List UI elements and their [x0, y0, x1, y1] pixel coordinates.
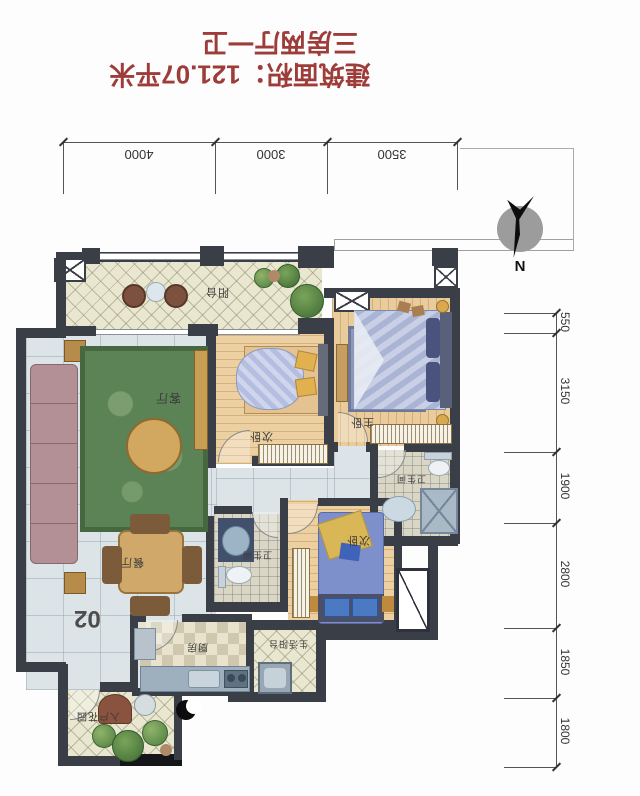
watermark-mark [186, 698, 202, 714]
dim-right-value: 1800 [559, 711, 571, 751]
wall-segment [58, 664, 68, 766]
stool [411, 305, 425, 317]
room-label-bath-master: 卫生间 [396, 474, 426, 483]
burner [227, 674, 235, 682]
dim-right-ext [504, 628, 557, 629]
floor-plan-page: 三房两厅一卫 建筑面积：121.07平米 4000 3000 3500 550 … [0, 0, 640, 796]
plant-icon [290, 284, 324, 318]
dim-right-value: 1850 [559, 642, 571, 682]
room-label-living: 客厅 [155, 392, 181, 404]
shower [420, 488, 458, 534]
wall-segment [316, 626, 326, 700]
dining-chair [182, 546, 202, 584]
room-label-entry-garden: 入户花园 [76, 710, 120, 720]
room-label-balcony: 阳台 [205, 286, 229, 297]
pot-icon [268, 270, 280, 282]
plant-icon [142, 720, 168, 746]
pillar [200, 246, 224, 266]
washing-machine-drum [264, 668, 286, 688]
wardrobe [292, 548, 310, 618]
room-label-bedroom-south: 次卧 [346, 534, 370, 545]
wall-segment [206, 602, 288, 612]
balcony-chair [122, 284, 146, 308]
dim-top-ext [215, 142, 216, 194]
eave-line [573, 148, 574, 250]
window [224, 253, 298, 260]
dim-top-ext [327, 142, 328, 194]
compass: N [490, 194, 554, 280]
balcony-chair [164, 284, 188, 308]
wall-segment [214, 506, 252, 514]
room-label-bath-common: 卫生间 [242, 550, 272, 559]
building-area-text: 建筑面积：121.07平米 [90, 60, 390, 89]
dim-tick [552, 762, 561, 771]
toilet-tank [218, 566, 226, 588]
wall-segment [280, 506, 288, 610]
pot-icon [160, 744, 172, 756]
plant-icon [112, 730, 144, 762]
pillar [298, 246, 334, 268]
dining-chair [130, 596, 170, 616]
wall-segment [280, 498, 288, 506]
room-label-master-bedroom: 主卧 [350, 416, 374, 427]
dim-right-ext [504, 333, 557, 334]
sliding-door [96, 329, 188, 335]
dim-top-line [63, 142, 457, 143]
pillar [432, 248, 458, 266]
dim-top-value: 4000 [109, 148, 169, 161]
wall-segment [58, 682, 68, 692]
wardrobe [370, 424, 452, 444]
wall-segment [66, 326, 96, 336]
dim-right-ext [504, 767, 557, 768]
unit-number: 02 [74, 604, 101, 632]
dim-top-value: 3500 [362, 148, 422, 161]
room-label-service-balcony: 生活阳台 [268, 639, 308, 648]
room-label-dining: 餐厅 [120, 556, 144, 567]
pillow [295, 377, 317, 398]
wall-segment [58, 756, 122, 766]
dresser [336, 344, 348, 402]
ac-unit-box [434, 266, 458, 288]
room-label-kitchen: 厨房 [186, 641, 208, 651]
dim-top-value: 3000 [241, 148, 301, 161]
dim-top-ext [457, 142, 458, 190]
headboard [318, 344, 328, 416]
wall-segment [174, 688, 182, 760]
dining-chair [130, 514, 170, 534]
balcony-table [146, 282, 166, 302]
dim-right-value: 3150 [559, 371, 571, 411]
mirror [134, 694, 156, 716]
north-label: N [505, 258, 535, 276]
wall-segment [332, 442, 338, 452]
kitchen-sink [188, 670, 220, 688]
dim-right-value: 550 [559, 302, 571, 342]
fridge [134, 628, 156, 660]
pillow [352, 598, 378, 617]
tv-cabinet [194, 350, 208, 450]
dim-right-ext [504, 452, 557, 453]
window [100, 253, 200, 260]
toilet [428, 460, 450, 476]
toilet-tank [424, 452, 452, 460]
sofa [30, 364, 78, 564]
wall-segment [182, 614, 252, 622]
dim-right-value: 2800 [559, 554, 571, 594]
dim-right-ext [504, 698, 557, 699]
burner [238, 674, 246, 682]
dining-chair [102, 546, 122, 584]
headboard [440, 312, 452, 408]
bay-window [334, 290, 370, 312]
pillow [324, 598, 350, 617]
nightstand [382, 596, 394, 612]
dim-right-value: 1900 [559, 466, 571, 506]
wall-segment [16, 328, 26, 672]
nightstand [436, 300, 449, 313]
pillow [294, 350, 317, 372]
pillow [426, 362, 440, 402]
side-table [64, 572, 86, 594]
sink [382, 496, 416, 522]
coffee-table [126, 418, 182, 474]
layout-type-title: 三房两厅一卫 [150, 28, 410, 57]
elevator-shaft [396, 568, 430, 632]
pillow [426, 318, 440, 358]
wardrobe [258, 444, 328, 464]
dim-right-ext [504, 523, 557, 524]
dim-top-ext [63, 142, 64, 194]
wall-segment [56, 252, 66, 336]
eave-line [460, 148, 574, 149]
window [218, 329, 300, 335]
dim-right-ext [504, 313, 557, 314]
wall-segment [376, 536, 458, 546]
toilet [226, 566, 252, 584]
room-label-bedroom-mid: 次卧 [249, 430, 273, 441]
